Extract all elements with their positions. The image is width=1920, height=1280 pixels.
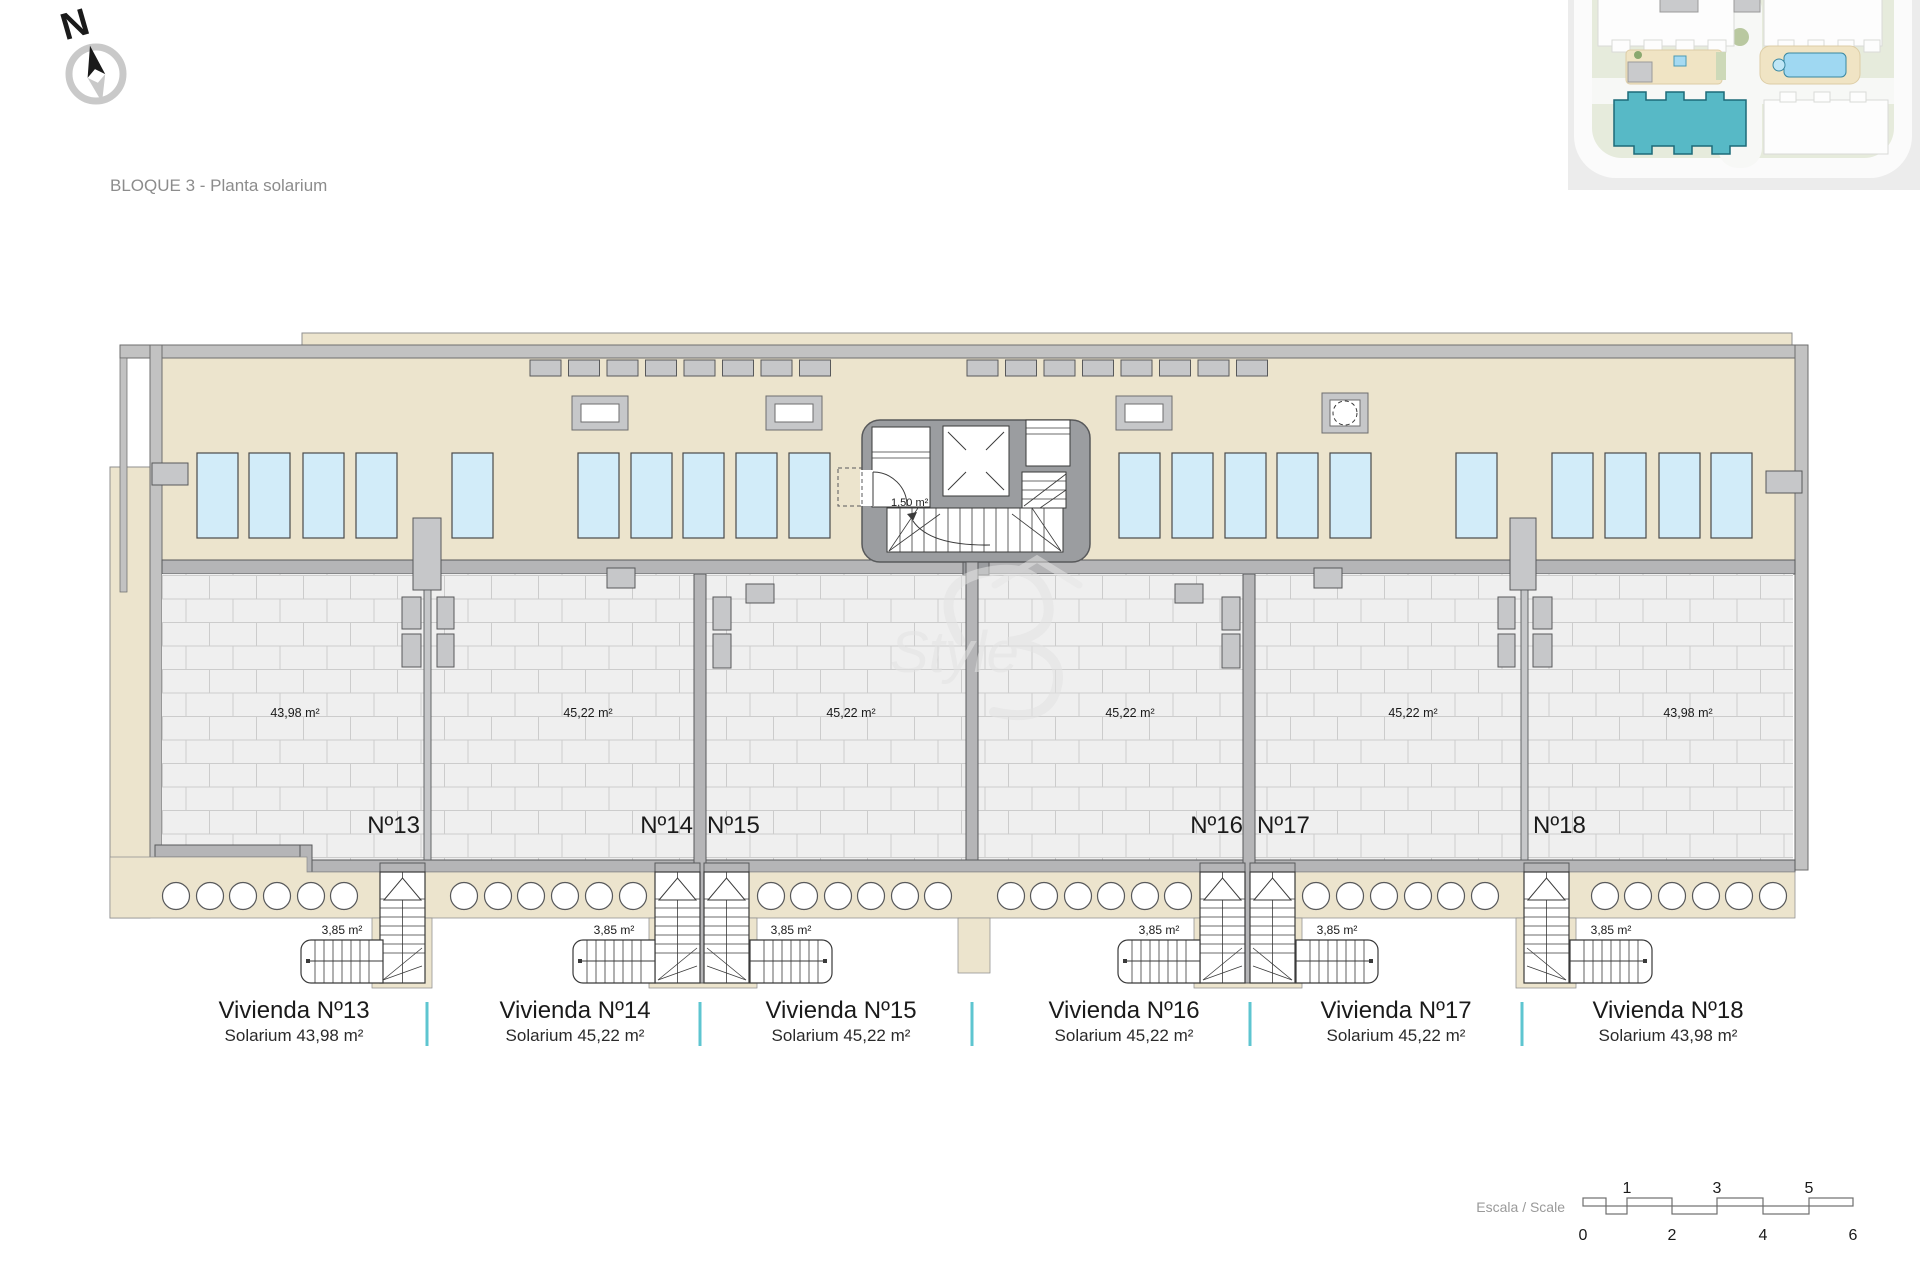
sunbed [1225, 453, 1266, 538]
stair-area-label: 3,85 m² [771, 923, 812, 937]
solarium-size-label: Solarium 45,22 m² [772, 1026, 911, 1045]
scale-tick: 6 [1849, 1227, 1858, 1244]
scale-bar: Escala / Scale 1350246 [1476, 1180, 1857, 1244]
sunbed [1711, 453, 1752, 538]
site-building-highlighted [1614, 92, 1746, 154]
stair-area-label: 3,85 m² [1139, 923, 1180, 937]
stair-landing-tab [958, 918, 990, 973]
sunbed [1119, 453, 1160, 538]
unit-number-label: Nº18 [1533, 812, 1586, 839]
sunbed [356, 453, 397, 538]
unit-area-label: 43,98 m² [1663, 706, 1712, 720]
vivienda-name-label: Vivienda Nº15 [765, 997, 916, 1024]
page-title: BLOQUE 3 - Planta solarium [110, 176, 327, 195]
divider-pillar [413, 518, 441, 590]
core-wc-room [872, 427, 930, 507]
sunbed [452, 453, 493, 538]
solarium-floor-plan: 3,85 m²3,85 m²3,85 m²3,85 m²3,85 m²3,85 … [110, 333, 1808, 1046]
site-building [1764, 0, 1882, 46]
stair-core [838, 420, 1090, 575]
vivienda-name-label: Vivienda Nº13 [218, 997, 369, 1024]
core-wc-area-label: 1,50 m² [891, 497, 929, 509]
unit-number-label: Nº15 [707, 812, 760, 839]
left-wing [110, 467, 150, 918]
sunbed [197, 453, 238, 538]
sunbed [578, 453, 619, 538]
unit-number-label: Nº14 [640, 812, 693, 839]
north-label: N [56, 1, 94, 49]
stair-area-label: 3,85 m² [594, 923, 635, 937]
stair-area-label: 3,85 m² [322, 923, 363, 937]
solarium-size-label: Solarium 43,98 m² [1599, 1026, 1738, 1045]
sunbed [631, 453, 672, 538]
unit-area-label: 45,22 m² [1105, 706, 1154, 720]
scale-tick: 4 [1759, 1227, 1768, 1244]
scale-tick: 1 [1623, 1180, 1632, 1197]
sunbed [789, 453, 830, 538]
sunbed [1456, 453, 1497, 538]
vivienda-name-label: Vivienda Nº14 [499, 997, 650, 1024]
stair-area-label: 3,85 m² [1317, 923, 1358, 937]
scale-tick: 3 [1713, 1180, 1722, 1197]
vivienda-name-label: Vivienda Nº17 [1320, 997, 1471, 1024]
sunbed [1172, 453, 1213, 538]
north-compass: N [56, 1, 123, 104]
solarium-size-label: Solarium 45,22 m² [506, 1026, 645, 1045]
site-overview-map [1568, 0, 1920, 190]
sunbed [1659, 453, 1700, 538]
bottom-wall [300, 860, 1795, 872]
vivienda-name-label: Vivienda Nº16 [1048, 997, 1199, 1024]
divider-pillar [1510, 518, 1536, 590]
sunbed [303, 453, 344, 538]
sunbed [1552, 453, 1593, 538]
unit-area-label: 45,22 m² [563, 706, 612, 720]
solarium-size-label: Solarium 43,98 m² [225, 1026, 364, 1045]
unit-area-label: 45,22 m² [826, 706, 875, 720]
sunbed [736, 453, 777, 538]
watermark-label: Style [890, 620, 1019, 685]
unit-area-label: 43,98 m² [270, 706, 319, 720]
top-wall [120, 345, 1808, 358]
sunbed [1277, 453, 1318, 538]
right-wall [1795, 345, 1808, 870]
unit-number-label: Nº13 [367, 812, 420, 839]
site-building [1764, 100, 1888, 154]
solarium-size-label: Solarium 45,22 m² [1055, 1026, 1194, 1045]
unit-number-label: Nº16 [1190, 812, 1243, 839]
floor-plan-drawing: BLOQUE 3 - Planta solarium N 3,85 m²3,85… [0, 0, 1920, 1280]
stair-area-label: 3,85 m² [1591, 923, 1632, 937]
left-wall [150, 345, 162, 860]
scale-tick: 0 [1579, 1227, 1588, 1244]
solarium-size-label: Solarium 45,22 m² [1327, 1026, 1466, 1045]
sunbed [683, 453, 724, 538]
scale-tick: 5 [1805, 1180, 1814, 1197]
chimney-circle [1333, 401, 1357, 425]
scale-bar-label: Escala / Scale [1476, 1199, 1565, 1215]
floor-plan-page: BLOQUE 3 - Planta solarium N 3,85 m²3,85… [0, 0, 1920, 1280]
unit-area-label: 45,22 m² [1388, 706, 1437, 720]
vivienda-name-label: Vivienda Nº18 [1592, 997, 1743, 1024]
sunbed [1605, 453, 1646, 538]
sunbed [1330, 453, 1371, 538]
sunbed [249, 453, 290, 538]
scale-tick: 2 [1668, 1227, 1677, 1244]
unit-number-label: Nº17 [1257, 812, 1310, 839]
